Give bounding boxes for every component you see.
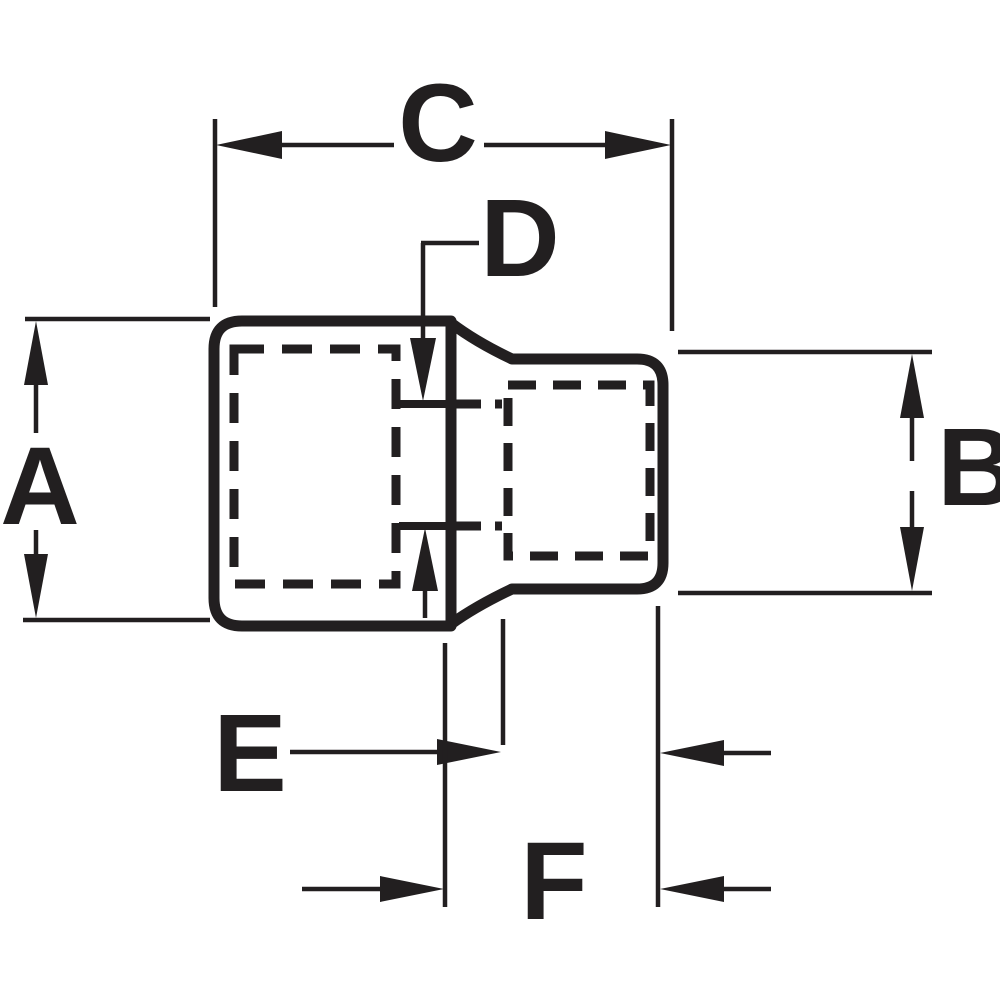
hidden-lines bbox=[234, 349, 650, 584]
taper-and-small-body-outline bbox=[451, 323, 663, 624]
large-bore-hidden-outline bbox=[234, 349, 396, 584]
dim-a-arrowhead-down bbox=[24, 554, 48, 618]
dim-b-arrowhead-down bbox=[900, 527, 924, 591]
dim-b-arrowhead-up bbox=[900, 354, 924, 418]
dim-d-arrowhead-down bbox=[410, 338, 436, 401]
dim-a-arrowhead-up bbox=[24, 321, 48, 385]
small-bore-hidden-outline bbox=[508, 385, 650, 556]
technical-drawing-canvas: A B C D E F bbox=[0, 0, 1000, 1000]
part-outline bbox=[214, 321, 663, 626]
shoulder-lines bbox=[399, 404, 447, 526]
dim-b bbox=[678, 352, 932, 593]
technical-drawing-svg bbox=[0, 0, 1000, 1000]
dim-e bbox=[290, 619, 771, 766]
dim-c-arrowhead-left bbox=[216, 131, 282, 159]
dim-label-b: B bbox=[937, 413, 1000, 523]
dim-label-e: E bbox=[213, 699, 286, 809]
dim-f-arrowhead-left bbox=[660, 876, 724, 902]
dim-e-arrowhead-left bbox=[660, 740, 724, 766]
dim-f-arrowhead-right bbox=[380, 876, 444, 902]
dim-label-c: C bbox=[398, 69, 477, 179]
dim-label-d: D bbox=[480, 184, 559, 294]
dim-d bbox=[410, 243, 479, 618]
dim-c-arrowhead-right bbox=[605, 131, 671, 159]
dim-label-f: F bbox=[520, 827, 587, 937]
dim-label-a: A bbox=[0, 432, 79, 542]
dim-d-arrowhead-up bbox=[412, 528, 438, 591]
